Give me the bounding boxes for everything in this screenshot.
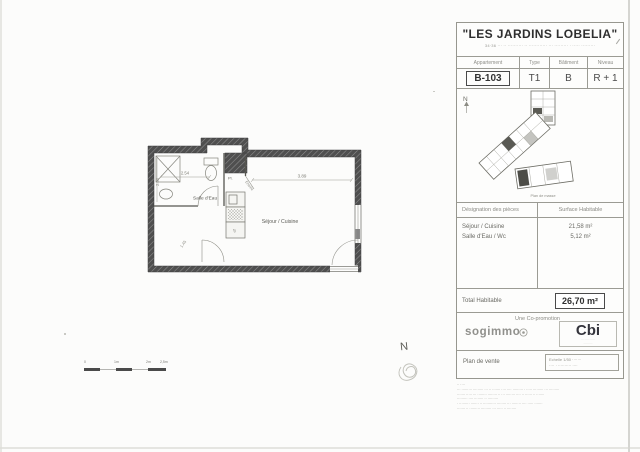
room-label-living: Séjour / Cuisine xyxy=(262,219,299,225)
toilet-bowl xyxy=(206,166,217,181)
room-surface: 21,58 m² xyxy=(538,222,623,232)
scale-label-0: 0 xyxy=(84,360,86,364)
apartment-table-values: B-103 T1 B R + 1 xyxy=(457,69,623,89)
room-name: Séjour / Cuisine xyxy=(462,222,537,232)
date-note: ···· · ·········· ···· xyxy=(549,363,615,369)
sogimmo-logo: sogimmo xyxy=(465,326,520,338)
handwritten-n: N xyxy=(399,341,408,354)
floor-plan-drawing: 2.54 3.89 2.50 1.45 Salle d'Eau Séjour /… xyxy=(140,130,380,290)
building-footprint xyxy=(479,91,573,189)
legal-line: ······· ·· ········· ········· ··· ·····… xyxy=(457,407,623,412)
window-bottom xyxy=(330,240,358,273)
apartment-level: R + 1 xyxy=(587,69,623,88)
dimension-lines xyxy=(157,158,353,202)
scan-edge-left xyxy=(0,0,2,452)
header-batiment: Bâtiment xyxy=(549,57,587,68)
room-label-bathroom: Salle d'Eau xyxy=(193,196,217,202)
legal-disclaimer: ·· ···· ··· ········· ········· ··· ·· ·… xyxy=(457,383,623,412)
scan-speck xyxy=(64,333,66,335)
label-closet: Pl. xyxy=(228,176,233,181)
apartment-table-header: Appartement Type Bâtiment Niveau xyxy=(457,57,623,69)
cbi-logo-box: Cbi ··· ····· ····· ········· xyxy=(559,321,617,347)
header-niveau: Niveau xyxy=(587,57,623,68)
handwritten-north-annotation: N xyxy=(392,336,426,384)
scan-edge-right xyxy=(628,0,630,452)
dim-hall: 1.45 xyxy=(179,239,188,249)
areas-table-header: Désignation des pièces Surface Habitable xyxy=(457,203,623,218)
scale-date-box: Echelle 1/50 ······· ···· · ·········· ·… xyxy=(545,354,619,371)
header-surface: Surface Habitable xyxy=(537,203,623,217)
footer-row: Plan de vente Echelle 1/50 ······· ···· … xyxy=(457,351,623,375)
dim-living-width: 3.89 xyxy=(298,174,307,179)
total-row: Total Habitable 26,70 m² xyxy=(457,289,623,313)
apartment-number: B-103 xyxy=(466,71,509,86)
scale-segment xyxy=(116,368,132,371)
header-appartement: Appartement xyxy=(457,57,519,68)
key-plan-drawing: N xyxy=(457,89,623,201)
header-designation: Désignation des pièces xyxy=(457,203,537,217)
title-section: "LES JARDINS LOBELIA" 34·36 ··· ·· ·····… xyxy=(457,27,623,57)
plan-type-label: Plan de vente xyxy=(463,359,500,365)
room-surface: 5,12 m² xyxy=(538,232,623,242)
scale-label-2m: 2m xyxy=(146,360,151,364)
pencil-scribble xyxy=(399,364,417,380)
window-right xyxy=(354,205,363,243)
scan-speck xyxy=(433,91,435,92)
toilet-tank xyxy=(204,158,218,165)
apartment-type: T1 xyxy=(519,69,549,88)
north-label: N xyxy=(463,96,468,103)
scale-bar: 0 1m 2m 2,5m xyxy=(84,358,178,376)
dim-bathroom-depth: 2.50 xyxy=(155,177,160,186)
washbasin xyxy=(160,189,173,199)
sogimmo-logo-icon xyxy=(519,328,528,337)
total-surface-value: 26,70 m² xyxy=(555,293,605,309)
label-entry: Entrée xyxy=(244,180,254,191)
scale-label-1m: 1m xyxy=(114,360,119,364)
scanned-plan-page: 2.54 3.89 2.50 1.45 Salle d'Eau Séjour /… xyxy=(0,0,640,452)
dim-bathroom-width: 2.54 xyxy=(181,171,190,176)
cbi-logo-subtext: ········· xyxy=(560,342,616,346)
header-type: Type xyxy=(519,57,549,68)
areas-table-body: Séjour / Cuisine Salle d'Eau / Wc 21,58 … xyxy=(457,218,623,289)
scale-label-2-5m: 2,5m xyxy=(160,360,168,364)
scan-edge-bottom xyxy=(0,447,640,449)
scale-segment xyxy=(148,368,166,371)
scale-segment xyxy=(84,368,100,371)
apartment-building: B xyxy=(549,69,587,88)
north-arrow-icon xyxy=(464,102,469,114)
cbi-logo: Cbi xyxy=(560,323,616,338)
closet-block xyxy=(225,153,247,173)
title-block: "LES JARDINS LOBELIA" 34·36 ··· ·· ·····… xyxy=(456,22,624,379)
project-title: "LES JARDINS LOBELIA" xyxy=(457,27,623,41)
project-address: 34·36 ··· ·· ·········· ·· ············ … xyxy=(457,43,623,48)
key-plan-caption: Plan de masse xyxy=(530,194,555,198)
label-appliance: fg xyxy=(233,229,236,233)
total-label: Total Habitable xyxy=(457,298,537,304)
bathroom-fixtures xyxy=(156,156,218,199)
copromotion-label: Une Co-promotion xyxy=(515,316,560,322)
branding-section: Une Co-promotion sogimmo Cbi ··· ····· ·… xyxy=(457,313,623,351)
key-plan-section: N xyxy=(457,89,623,203)
room-name: Salle d'Eau / Wc xyxy=(462,232,537,242)
